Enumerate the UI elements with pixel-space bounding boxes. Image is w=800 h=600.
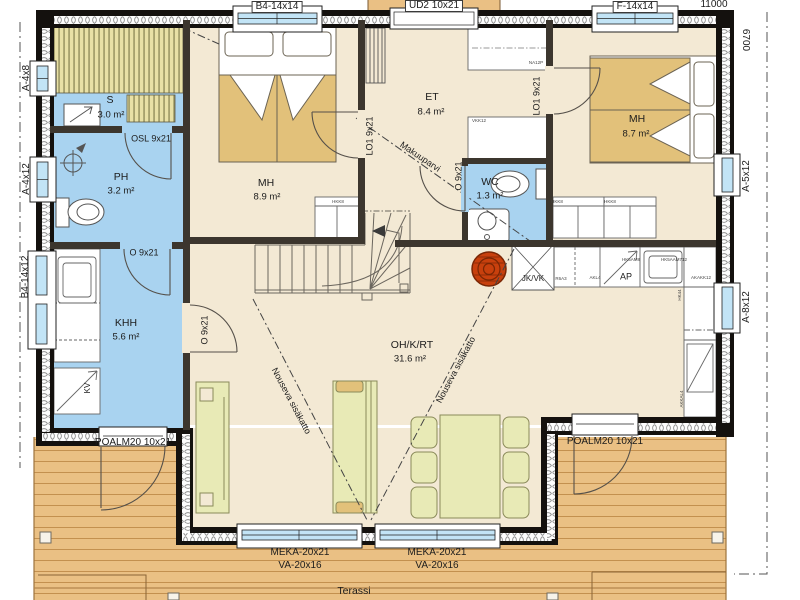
window-label-a5x12: A-5x12 [742,160,752,192]
room-label-bedroom-left: MH [258,178,274,189]
room-area-living: 31.6 m² [394,354,426,364]
door-label-entrance: UD2 10x21 [405,0,463,12]
sauna-stove [64,104,100,126]
room-area-sauna: 3.0 m² [98,110,125,120]
door-label-bathroom: O 9x21 [129,249,158,258]
dimension-width: 11000 [700,0,727,10]
room-label-entry: ET [425,92,438,103]
appliance-label-fridge: JK/VK [522,275,544,283]
door-label-utility: O 9x21 [201,315,210,344]
code-entry-closet: VKK12 [472,119,486,124]
bed-left [219,27,336,162]
room-label-bathroom: PH [114,172,129,183]
window-label-a4x8: A-4x8 [22,65,32,91]
code-kitchen-a: R6A3 [555,277,566,282]
room-area-entry: 8.4 m² [418,107,445,117]
door-label-sauna: OSL 9x21 [131,135,171,144]
floor-plan: B4-14x14 UD2 10x21 F-14x14 11000 6700 A-… [0,0,800,600]
sofa [333,381,377,513]
code-kitchen-g: HK44 [678,289,683,300]
room-label-utility: KHH [115,318,137,329]
window-label-a4x12: A-4x12 [22,163,32,195]
room-label-bedroom-right: MH [629,114,645,125]
code-kitchen-b: AKL4 [589,276,600,281]
utility-counter [54,249,100,414]
door-label-bedroom-right: LO1 9x21 [533,76,542,115]
code-bedroom-left-closet: HKK8 [332,200,344,205]
room-label-sauna: S [106,95,113,106]
window-label-a8x12: A-8x12 [742,291,752,323]
tv-bench [196,382,229,513]
code-entry-wardrobe: NA12P [529,61,543,66]
room-area-wc: 1.3 m² [477,191,504,201]
dimension-depth: 6700 [740,29,750,51]
window-label-b4-top: B4-14x14 [252,1,303,13]
window-label-b4-left: B4-14x12 [21,256,31,299]
bed-right [590,56,718,163]
room-label-wc: WC [481,177,499,188]
window-label-bay-right-size: VA-20x16 [415,561,458,571]
room-area-bathroom: 3.2 m² [108,186,135,196]
appliance-label-dishwasher: AP [620,273,632,282]
window-label-f-top: F-14x14 [613,1,658,13]
code-bedroom-right-closet-a: HKK8 [551,200,563,205]
window-label-bay-right-type: MEKA-20x21 [408,548,467,558]
door-label-terrace-right: POALM20 10x21 [567,437,643,447]
door-label-wc: O 9x21 [455,161,464,190]
window-label-bay-left-size: VA-20x16 [278,561,321,571]
window-label-bay-left-type: MEKA-20x21 [271,548,330,558]
room-area-bedroom-right: 8.7 m² [623,129,650,139]
code-bedroom-right-closet-b: HKK8 [604,200,616,205]
room-label-living: OH/K/RT [391,340,433,351]
room-label-terrace: Terassi [337,586,370,597]
door-label-bedroom-left: LO1 9x21 [366,116,375,155]
room-area-utility: 5.6 m² [113,332,140,342]
dining-set [411,415,529,518]
door-label-terrace-left: POALM20 10x21 [95,438,171,448]
code-kitchen-d: HK5AAM712 [661,258,687,263]
fridge-freezer-unit [512,244,554,290]
code-kitchen-c: HK5AM8 [622,258,640,263]
appliance-label-drying: KV [84,383,92,394]
room-area-bedroom-left: 8.9 m² [254,192,281,202]
code-kitchen-e: AKAKK12 [691,276,711,281]
code-kitchen-f: AKKAL4 [680,390,685,407]
